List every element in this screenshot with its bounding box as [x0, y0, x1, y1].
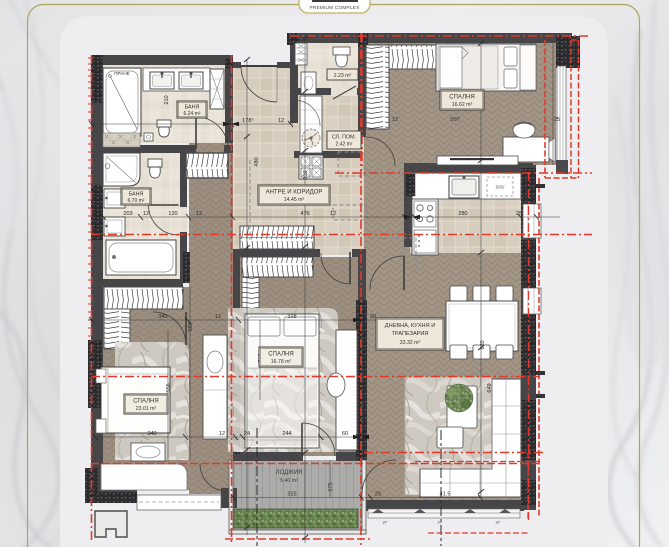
svg-text:820: 820	[480, 340, 486, 349]
svg-text:16.78 m²: 16.78 m²	[271, 359, 292, 365]
svg-text:340: 340	[147, 431, 156, 437]
svg-text:25: 25	[516, 211, 522, 217]
svg-text:СПАЛНЯ: СПАЛНЯ	[449, 95, 474, 101]
svg-text:33.32 m²: 33.32 m²	[400, 340, 421, 346]
svg-text:12: 12	[392, 117, 398, 123]
svg-text:280: 280	[458, 211, 467, 217]
svg-text:649: 649	[487, 383, 493, 392]
svg-text:244: 244	[282, 431, 291, 437]
svg-text:PREMIUM COMPLEX: PREMIUM COMPLEX	[309, 5, 360, 10]
svg-text:60: 60	[342, 431, 348, 437]
svg-text:ДНЕВНА, КУХНЯ И: ДНЕВНА, КУХНЯ И	[385, 323, 435, 329]
svg-text:14.45 m²: 14.45 m²	[284, 197, 305, 203]
svg-text:328: 328	[287, 314, 296, 320]
svg-text:ТРАПЕЗАРИЯ: ТРАПЕЗАРИЯ	[392, 331, 429, 337]
svg-text:556: 556	[166, 383, 172, 392]
svg-text:12: 12	[215, 314, 221, 320]
svg-text:178⁵: 178⁵	[242, 117, 254, 124]
svg-text:УГ: УГ	[496, 520, 502, 525]
svg-text:ЛОДЖИЯ: ЛОДЖИЯ	[276, 470, 303, 476]
svg-text:24: 24	[244, 431, 250, 437]
svg-text:25: 25	[375, 492, 381, 498]
svg-text:16.62 m²: 16.62 m²	[452, 102, 473, 108]
svg-text:12: 12	[219, 431, 225, 437]
svg-text:УГ: УГ	[438, 520, 444, 525]
svg-text:2.42 m²: 2.42 m²	[336, 142, 353, 148]
svg-text:175: 175	[328, 482, 334, 491]
svg-text:25: 25	[554, 117, 560, 123]
svg-text:6.24 m²: 6.24 m²	[184, 111, 201, 117]
svg-text:888: 888	[188, 322, 194, 331]
svg-text:СПАЛНЯ: СПАЛНЯ	[268, 352, 293, 358]
svg-text:УГ: УГ	[383, 520, 389, 525]
svg-text:2.23 m²: 2.23 m²	[334, 73, 352, 79]
svg-text:507: 507	[450, 117, 459, 123]
svg-text:480: 480	[254, 157, 260, 166]
svg-text:315: 315	[287, 492, 296, 498]
svg-text:12: 12	[278, 118, 284, 124]
svg-text:203: 203	[123, 211, 132, 217]
svg-text:5.40 m²: 5.40 m²	[280, 478, 298, 484]
svg-text:41.5: 41.5	[440, 492, 451, 498]
svg-text:476: 476	[300, 211, 309, 217]
svg-text:12: 12	[330, 211, 336, 217]
svg-text:СЛ. ПОМ.: СЛ. ПОМ.	[332, 135, 356, 141]
svg-text:БАНЯ: БАНЯ	[129, 192, 144, 198]
svg-text:12: 12	[196, 211, 202, 217]
svg-text:30: 30	[370, 314, 376, 320]
svg-text:340: 340	[158, 314, 167, 320]
svg-text:12: 12	[143, 211, 149, 217]
svg-text:СПАЛНЯ: СПАЛНЯ	[133, 399, 158, 405]
svg-text:ПРАНЕ: ПРАНЕ	[114, 71, 130, 76]
svg-text:6.70 m²: 6.70 m²	[128, 198, 145, 204]
svg-text:210: 210	[164, 95, 170, 104]
svg-text:120: 120	[168, 211, 177, 217]
svg-text:MW: MW	[496, 185, 505, 191]
svg-text:23.01 m²: 23.01 m²	[136, 406, 157, 412]
svg-text:310: 310	[303, 170, 309, 179]
svg-text:АНТРЕ И КОРИДОР: АНТРЕ И КОРИДОР	[266, 190, 323, 196]
svg-text:БАНЯ: БАНЯ	[185, 105, 200, 111]
